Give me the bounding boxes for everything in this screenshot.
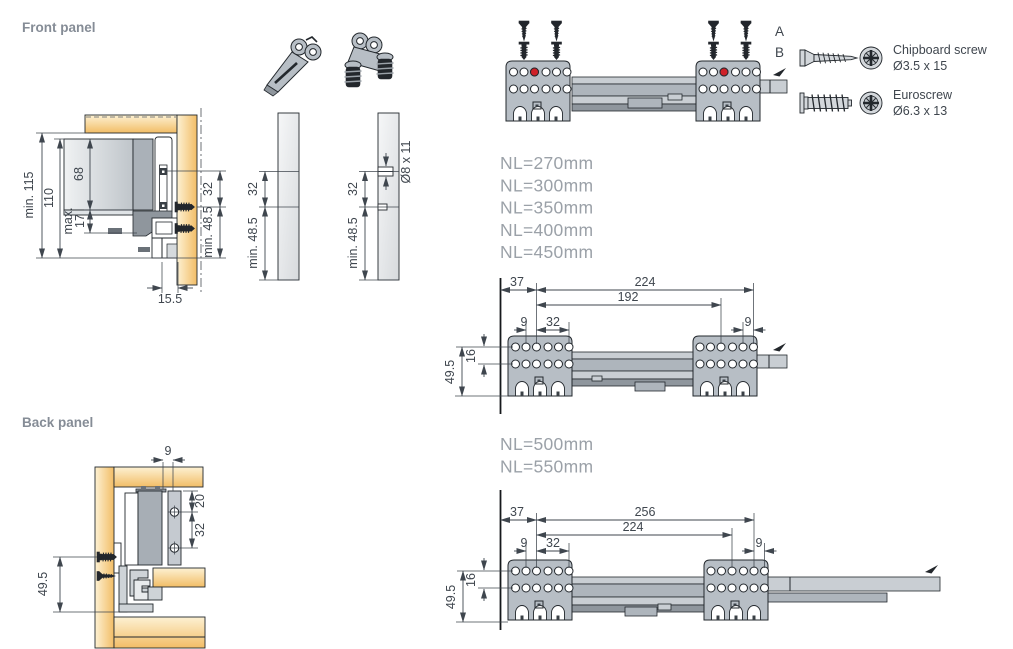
nl-length-item: NL=450mm <box>500 242 593 262</box>
slide-assembly-top: A B <box>506 21 787 121</box>
label-b: B <box>775 45 784 60</box>
screw-legend: Chipboard screw Ø3.5 x 15 Euroscrew Ø6.3… <box>800 43 988 118</box>
dim-155: 15.5 <box>158 292 182 306</box>
dim-9-right: 9 <box>745 315 752 329</box>
front-panel-wood <box>177 115 197 285</box>
nl-length-item: NL=400mm <box>500 220 593 240</box>
dim-192: 192 <box>618 290 639 304</box>
back-panel-cross-section: 9 20 32 49.5 <box>36 444 207 648</box>
label-a: A <box>775 24 784 39</box>
euroscrew-side-icon <box>800 93 852 113</box>
front-panel-cross-section: min. 115 110 68 max. 17 32 min. 48.5 15.… <box>22 108 226 306</box>
dim-495-back: 49.5 <box>36 572 50 596</box>
technical-drawing-canvas: Front panel Back panel min. 115 <box>0 0 1013 649</box>
dim-110: 110 <box>42 188 56 208</box>
shelf-wood <box>153 568 205 587</box>
chipboard-screw-side-icon <box>800 50 857 66</box>
dim-224: 224 <box>635 275 656 289</box>
rail-tongue <box>758 80 787 93</box>
nominal-lengths-short: NL=270mm NL=300mm NL=350mm NL=400mm NL=4… <box>500 153 593 262</box>
nl-length-item: NL=270mm <box>500 153 593 173</box>
chipboard-screw-icon <box>709 21 719 41</box>
euroscrew-icon <box>709 42 719 60</box>
installation-drawing-page: Front panel Back panel min. 115 <box>0 0 1013 649</box>
dim-495: 49.5 <box>443 360 457 384</box>
dim-9-back: 9 <box>165 444 172 458</box>
dim-32-front: 32 <box>201 182 215 196</box>
drilling-diagram-long: 37 256 224 9 32 9 16 49.5 <box>444 490 940 630</box>
chipboard-screw-name: Chipboard screw <box>893 43 988 57</box>
dim-32-back: 32 <box>193 523 207 537</box>
cabinet-bottom-wood <box>114 617 205 648</box>
drilling-diagram-short: 37 224 192 9 32 9 16 49.5 <box>443 275 787 414</box>
index-hole-red-left <box>531 68 539 76</box>
front-bracket-icon-euroscrew <box>345 33 394 87</box>
dim-9-left: 9 <box>521 536 528 550</box>
dim-9-left: 9 <box>521 315 528 329</box>
euroscrew-size: Ø6.3 x 13 <box>893 104 947 118</box>
dim-495: 49.5 <box>444 585 458 609</box>
strip1-dim-min-485: min. 48.5 <box>246 217 260 268</box>
direction-arrow-icon <box>925 565 938 574</box>
dim-224: 224 <box>623 520 644 534</box>
panel-strip-drilled: 32 min. 48.5 Ø8 x 11 <box>346 113 413 280</box>
dim-16: 16 <box>464 349 478 363</box>
dim-256: 256 <box>635 505 656 519</box>
front-panel-title: Front panel <box>22 20 96 35</box>
euroscrew-attached-1 <box>345 61 362 87</box>
front-bracket-icon-screw-on <box>264 37 321 96</box>
euroscrew-name: Euroscrew <box>893 88 953 102</box>
euroscrew-icon <box>519 42 529 60</box>
extended-runner-rail <box>768 577 940 591</box>
strip2-dim-min-485: min. 48.5 <box>346 217 360 268</box>
chipboard-screw-icon <box>519 21 529 41</box>
dim-17: 17 <box>73 214 87 228</box>
nominal-lengths-long: NL=500mm NL=550mm <box>500 434 593 476</box>
dim-20-back: 20 <box>193 494 207 508</box>
nl-length-item: NL=300mm <box>500 175 593 195</box>
euroscrew-icon <box>741 42 751 60</box>
dim-37: 37 <box>510 505 524 519</box>
back-panel-title: Back panel <box>22 415 93 430</box>
direction-arrow-icon <box>773 68 786 77</box>
drawer-back-panel <box>138 491 162 565</box>
strip1-dim-32: 32 <box>246 182 260 196</box>
direction-arrow-icon <box>773 343 786 352</box>
dim-min-115: min. 115 <box>22 171 36 218</box>
nl-length-item: NL=350mm <box>500 198 593 218</box>
rail-tongue <box>757 355 787 368</box>
chipboard-screw-size: Ø3.5 x 15 <box>893 59 947 73</box>
euroscrew-head-icon <box>860 92 882 114</box>
index-hole-red-right <box>720 68 728 76</box>
dim-37: 37 <box>510 275 524 289</box>
dim-16: 16 <box>464 573 478 587</box>
dim-68: 68 <box>72 167 86 181</box>
euroscrew-attached-2 <box>377 53 394 79</box>
nl-length-item: NL=550mm <box>500 456 593 476</box>
dim-32: 32 <box>546 315 560 329</box>
dim-32: 32 <box>546 536 560 550</box>
euroscrew-icon <box>552 42 562 60</box>
strip2-dim-32: 32 <box>346 182 360 196</box>
dim-9-right: 9 <box>756 536 763 550</box>
cabinet-back-wood <box>114 467 203 487</box>
dim-min-485-front: min. 48.5 <box>201 206 215 257</box>
chipboard-screw-icon <box>552 21 562 41</box>
strip2-dim-hole: Ø8 x 11 <box>399 141 413 184</box>
nl-length-item: NL=500mm <box>500 434 593 454</box>
panel-strip-plain: 32 min. 48.5 <box>246 113 299 280</box>
chipboard-screw-head-icon <box>860 47 882 69</box>
cabinet-top-wood <box>85 115 177 133</box>
chipboard-screw-icon <box>741 21 751 41</box>
